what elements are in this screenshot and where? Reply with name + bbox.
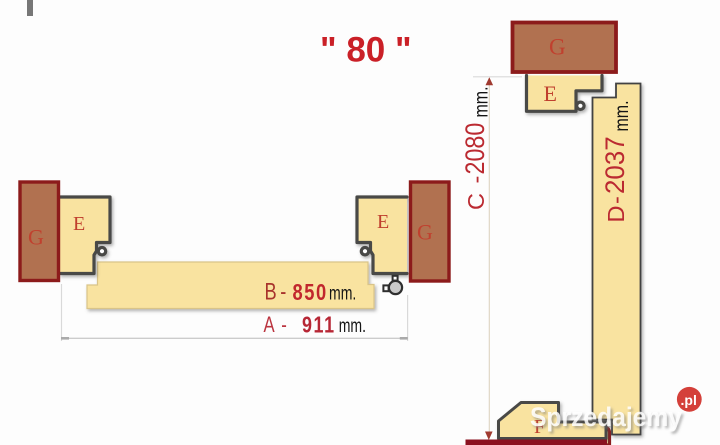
svg-text:E: E xyxy=(377,211,389,233)
svg-text:D: D xyxy=(603,206,629,223)
svg-text:-: - xyxy=(463,176,489,184)
svg-text:B: B xyxy=(265,278,277,305)
svg-text:2037: 2037 xyxy=(600,136,630,194)
svg-text:mm.: mm. xyxy=(329,282,356,304)
svg-text:G: G xyxy=(549,35,566,60)
svg-text:" 80 ": " 80 " xyxy=(320,31,412,70)
svg-text:A: A xyxy=(264,313,275,338)
svg-text:mm.: mm. xyxy=(339,315,366,337)
svg-text:mm.: mm. xyxy=(470,87,492,118)
svg-text:2080: 2080 xyxy=(461,123,491,175)
svg-text:-: - xyxy=(281,313,287,338)
svg-text:-: - xyxy=(280,278,286,305)
svg-text:mm.: mm. xyxy=(611,101,633,132)
svg-text:C: C xyxy=(463,193,489,210)
svg-text:911: 911 xyxy=(302,312,336,338)
svg-text:G: G xyxy=(417,220,433,245)
svg-text:.pl: .pl xyxy=(681,392,697,408)
svg-text:850: 850 xyxy=(293,280,328,306)
svg-text:E: E xyxy=(73,213,85,235)
svg-text:Sprzedajemy: Sprzedajemy xyxy=(530,402,682,432)
svg-text:-: - xyxy=(603,196,629,204)
svg-text:G: G xyxy=(28,225,44,250)
svg-text:E: E xyxy=(544,81,557,106)
